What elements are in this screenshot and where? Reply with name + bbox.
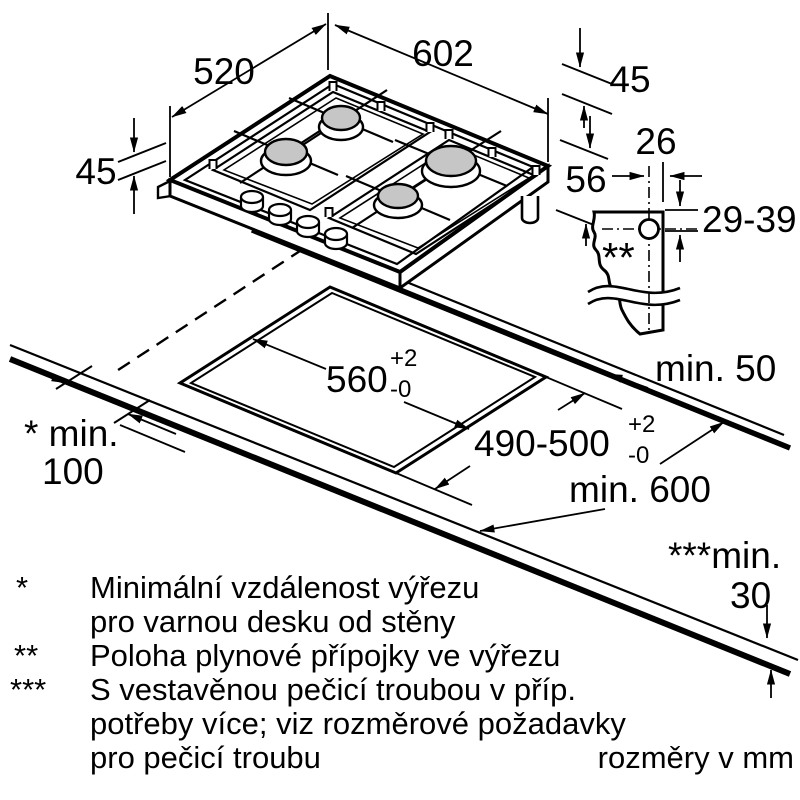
- units-note: rozměry v mm: [598, 740, 794, 775]
- hob-height-right-label: 45: [609, 59, 650, 100]
- legend-line: Poloha plynové přípojky ve výřezu: [90, 638, 560, 673]
- legend-line: pro varnou desku od stěny: [90, 604, 456, 639]
- support-post: [533, 166, 540, 175]
- hob-depth-label: 520: [193, 51, 255, 92]
- support-post: [489, 148, 496, 157]
- legend: * Minimální vzdálenost výřezu pro varnou…: [10, 570, 794, 775]
- legend-marker-2: **: [14, 638, 38, 673]
- cutout-depth-dim-line-b: [435, 466, 470, 489]
- knob-top: [325, 228, 347, 240]
- cutout-depth-ext-line-b: [396, 473, 472, 505]
- cutout-depth-tol-minus: -0: [628, 442, 649, 469]
- burner-cap-right: [426, 146, 476, 176]
- legend-marker-1: *: [16, 570, 28, 605]
- knob-top: [297, 216, 319, 228]
- hob-foot: [522, 196, 538, 223]
- support-post: [210, 160, 217, 169]
- cutout-depth-label: 490-500: [474, 423, 610, 464]
- gas-connection-point: [640, 220, 659, 239]
- clearance-side-label: * min.: [24, 413, 119, 454]
- legend-line: potřeby více; viz rozměrové požadavky: [90, 706, 626, 741]
- cutout-depth-tol-plus: +2: [628, 411, 655, 438]
- hob-height-left-tick-b: [118, 161, 166, 180]
- hob-top-view: 602 520 45 45 56: [75, 13, 650, 288]
- hob-depth-below-tick-a: [560, 140, 608, 159]
- clearance-side-ext-line: [120, 425, 185, 452]
- legend-marker-3: ***: [10, 672, 46, 707]
- support-post: [446, 130, 453, 139]
- clearance-back-leader: [608, 374, 648, 388]
- worktop-depth-label: min. 600: [569, 469, 711, 510]
- clearance-front-value: 30: [730, 575, 771, 616]
- clearance-side-value: 100: [42, 451, 104, 492]
- installation-diagram: 560 +2 -0 490-500 +2 -0 min. 50 * min. 1…: [0, 0, 800, 800]
- worktop-depth-arrow-up: [660, 422, 724, 464]
- legend-line: Minimální vzdálenost výřezu: [90, 570, 479, 605]
- support-post: [326, 208, 333, 217]
- hob-height-left-tick-a: [118, 143, 166, 162]
- support-post: [427, 123, 434, 132]
- legend-line: pro pečicí troubu: [90, 740, 321, 775]
- clearance-front-label: ***min.: [668, 535, 781, 576]
- gas-connection-detail: 26 29-39 **: [588, 121, 797, 334]
- burner-cap-front: [378, 184, 418, 208]
- knob-top: [241, 191, 263, 203]
- support-post: [378, 102, 385, 111]
- hob-height-right-tick-b: [562, 94, 612, 114]
- cutout-width-tol-plus: +2: [390, 345, 417, 372]
- support-post: [330, 82, 337, 91]
- worktop-depth-arrow-down: [480, 509, 605, 531]
- hob-height-left-label: 45: [75, 151, 116, 192]
- detail-marker-label: **: [602, 234, 635, 281]
- legend-line: S vestavěnou pečicí troubou v příp.: [90, 672, 576, 707]
- burner-cap-left: [265, 139, 307, 165]
- connection-range-label: 29-39: [702, 199, 797, 240]
- hob-height-right-tick-a: [562, 64, 612, 84]
- connection-offset-label: 26: [635, 121, 676, 162]
- cutout-width-label: 560: [326, 359, 388, 400]
- cutout-depth-dim-line-a: [558, 393, 585, 410]
- knob-top: [269, 204, 291, 216]
- hob-depth-below-label: 56: [565, 159, 606, 200]
- hob-width-label: 602: [412, 33, 474, 74]
- diagram-svg: 560 +2 -0 490-500 +2 -0 min. 50 * min. 1…: [0, 0, 800, 800]
- clearance-back-label: min. 50: [655, 348, 776, 389]
- burner-cap-back: [322, 106, 360, 130]
- cutout-width-tol-minus: -0: [390, 376, 411, 403]
